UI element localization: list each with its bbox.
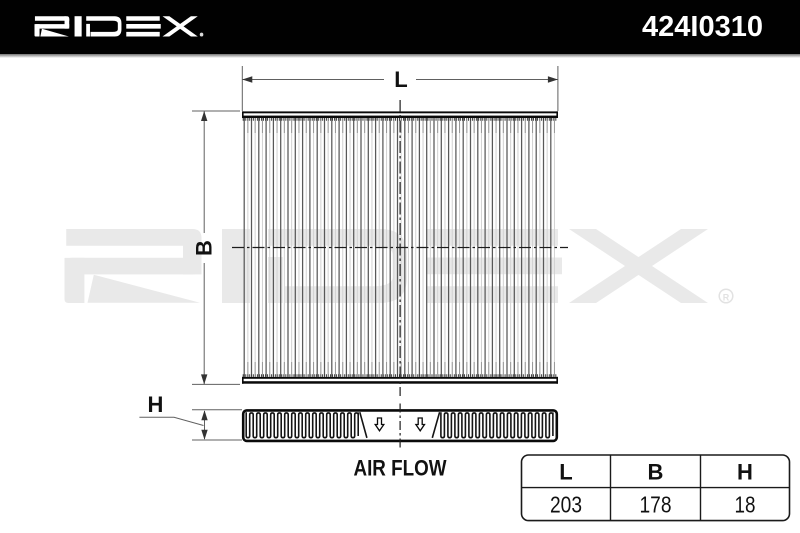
svg-text:B: B [192,240,217,256]
svg-text:R: R [723,292,730,302]
svg-text:18: 18 [735,492,756,518]
svg-text:AIR FLOW: AIR FLOW [354,455,447,480]
svg-text:203: 203 [550,492,582,518]
svg-text:178: 178 [640,492,672,518]
svg-text:L: L [394,67,407,92]
svg-text:L: L [559,460,572,485]
svg-text:H: H [737,460,753,485]
svg-text:424I0310: 424I0310 [642,11,763,43]
svg-text:B: B [648,460,664,485]
svg-text:H: H [148,392,164,417]
